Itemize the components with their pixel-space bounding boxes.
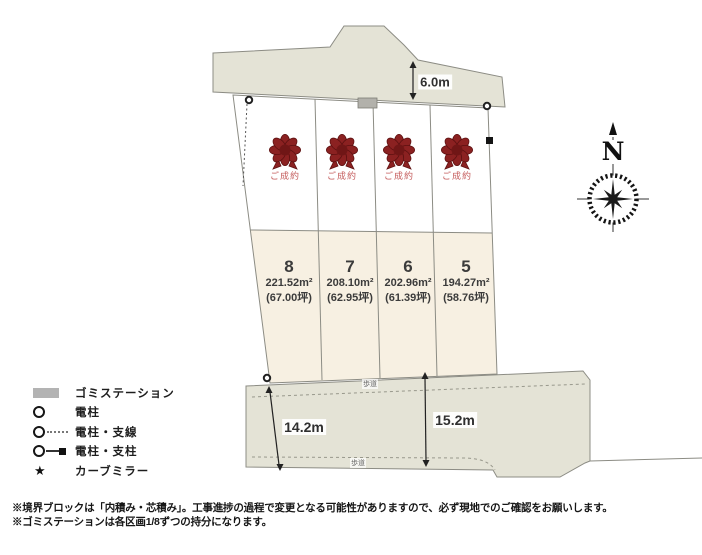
plot-info-5: 5 194.27m² (58.76坪): [433, 257, 499, 305]
sidewalk-label-top: 歩道: [362, 379, 378, 389]
utility-pole-icon: [246, 97, 252, 103]
utility-pole-support-icon: [33, 445, 75, 457]
plot-number: 6: [375, 257, 441, 276]
legend-label: カーブミラー: [75, 463, 149, 479]
plot-area-m2: 221.52m²: [256, 276, 322, 291]
note-line-1: ※境界ブロックは「内積み・芯積み」。工事進捗の過程で変更となる可能性がありますの…: [12, 502, 700, 516]
plot-number: 8: [256, 257, 322, 276]
legend-item-pole-support: 電柱・支柱: [33, 442, 175, 462]
plot-area-tsubo: (62.95坪): [317, 291, 383, 305]
garbage-station-swatch-icon: [33, 388, 75, 398]
plot-area-tsubo: (58.76坪): [433, 291, 499, 305]
plot-area-m2: 194.27m²: [433, 276, 499, 291]
sidewalk-label-bottom: 歩道: [350, 458, 366, 468]
plots-lower-band: [250, 230, 497, 383]
sold-label-plot-5: ご成約: [435, 169, 479, 182]
sold-label-plot-7: ご成約: [320, 169, 364, 182]
legend-label: ゴミステーション: [75, 385, 175, 401]
utility-pole-icon: [264, 375, 270, 381]
garbage-station-area: [358, 98, 377, 108]
plot-info-7: 7 208.10m² (62.95坪): [317, 257, 383, 305]
plot-number: 7: [317, 257, 383, 276]
top-road: [213, 26, 505, 107]
dim-left-label: 14.2m: [282, 419, 326, 435]
legend-label: 電柱・支柱: [75, 443, 138, 459]
plot-info-6: 6 202.96m² (61.39坪): [375, 257, 441, 305]
sold-label-plot-6: ご成約: [377, 169, 421, 182]
sold-label-plot-8: ご成約: [263, 169, 307, 182]
plot-info-8: 8 221.52m² (67.00坪): [256, 257, 322, 305]
site-plan: N ご成約 ご成約 ご成約 ご成約 8 221.52m² (67.00坪) 7 …: [0, 0, 702, 555]
plot-number: 5: [433, 257, 499, 276]
dim-right-label: 15.2m: [433, 412, 477, 428]
plot-area-tsubo: (61.39坪): [375, 291, 441, 305]
pole-support-icon: [486, 137, 493, 144]
legend-item-garbage-station: ゴミステーション: [33, 383, 175, 403]
legend-label: 電柱: [75, 404, 100, 420]
note-line-2: ※ゴミステーションは各区画1/8ずつの持分になります。: [12, 516, 700, 530]
plot-area-tsubo: (67.00坪): [256, 291, 322, 305]
utility-pole-guywire-icon: [33, 426, 75, 438]
curb-line: [590, 458, 702, 461]
curve-mirror-star-icon: ★: [33, 464, 75, 477]
legend-item-curve-mirror: ★ カーブミラー: [33, 461, 175, 481]
footer-notes: ※境界ブロックは「内積み・芯積み」。工事進捗の過程で変更となる可能性がありますの…: [12, 502, 700, 529]
legend-label: 電柱・支線: [75, 424, 138, 440]
road-width-label: 6.0m: [418, 75, 452, 90]
utility-pole-icon: [33, 406, 75, 418]
legend: ゴミステーション 電柱 電柱・支線 電柱・支柱 ★ カーブミラー: [33, 383, 175, 481]
compass-north-label: N: [601, 140, 626, 164]
legend-item-pole-guywire: 電柱・支線: [33, 422, 175, 442]
utility-pole-icon: [484, 103, 490, 109]
plot-area-m2: 208.10m²: [317, 276, 383, 291]
legend-item-pole: 電柱: [33, 403, 175, 423]
plot-area-m2: 202.96m²: [375, 276, 441, 291]
